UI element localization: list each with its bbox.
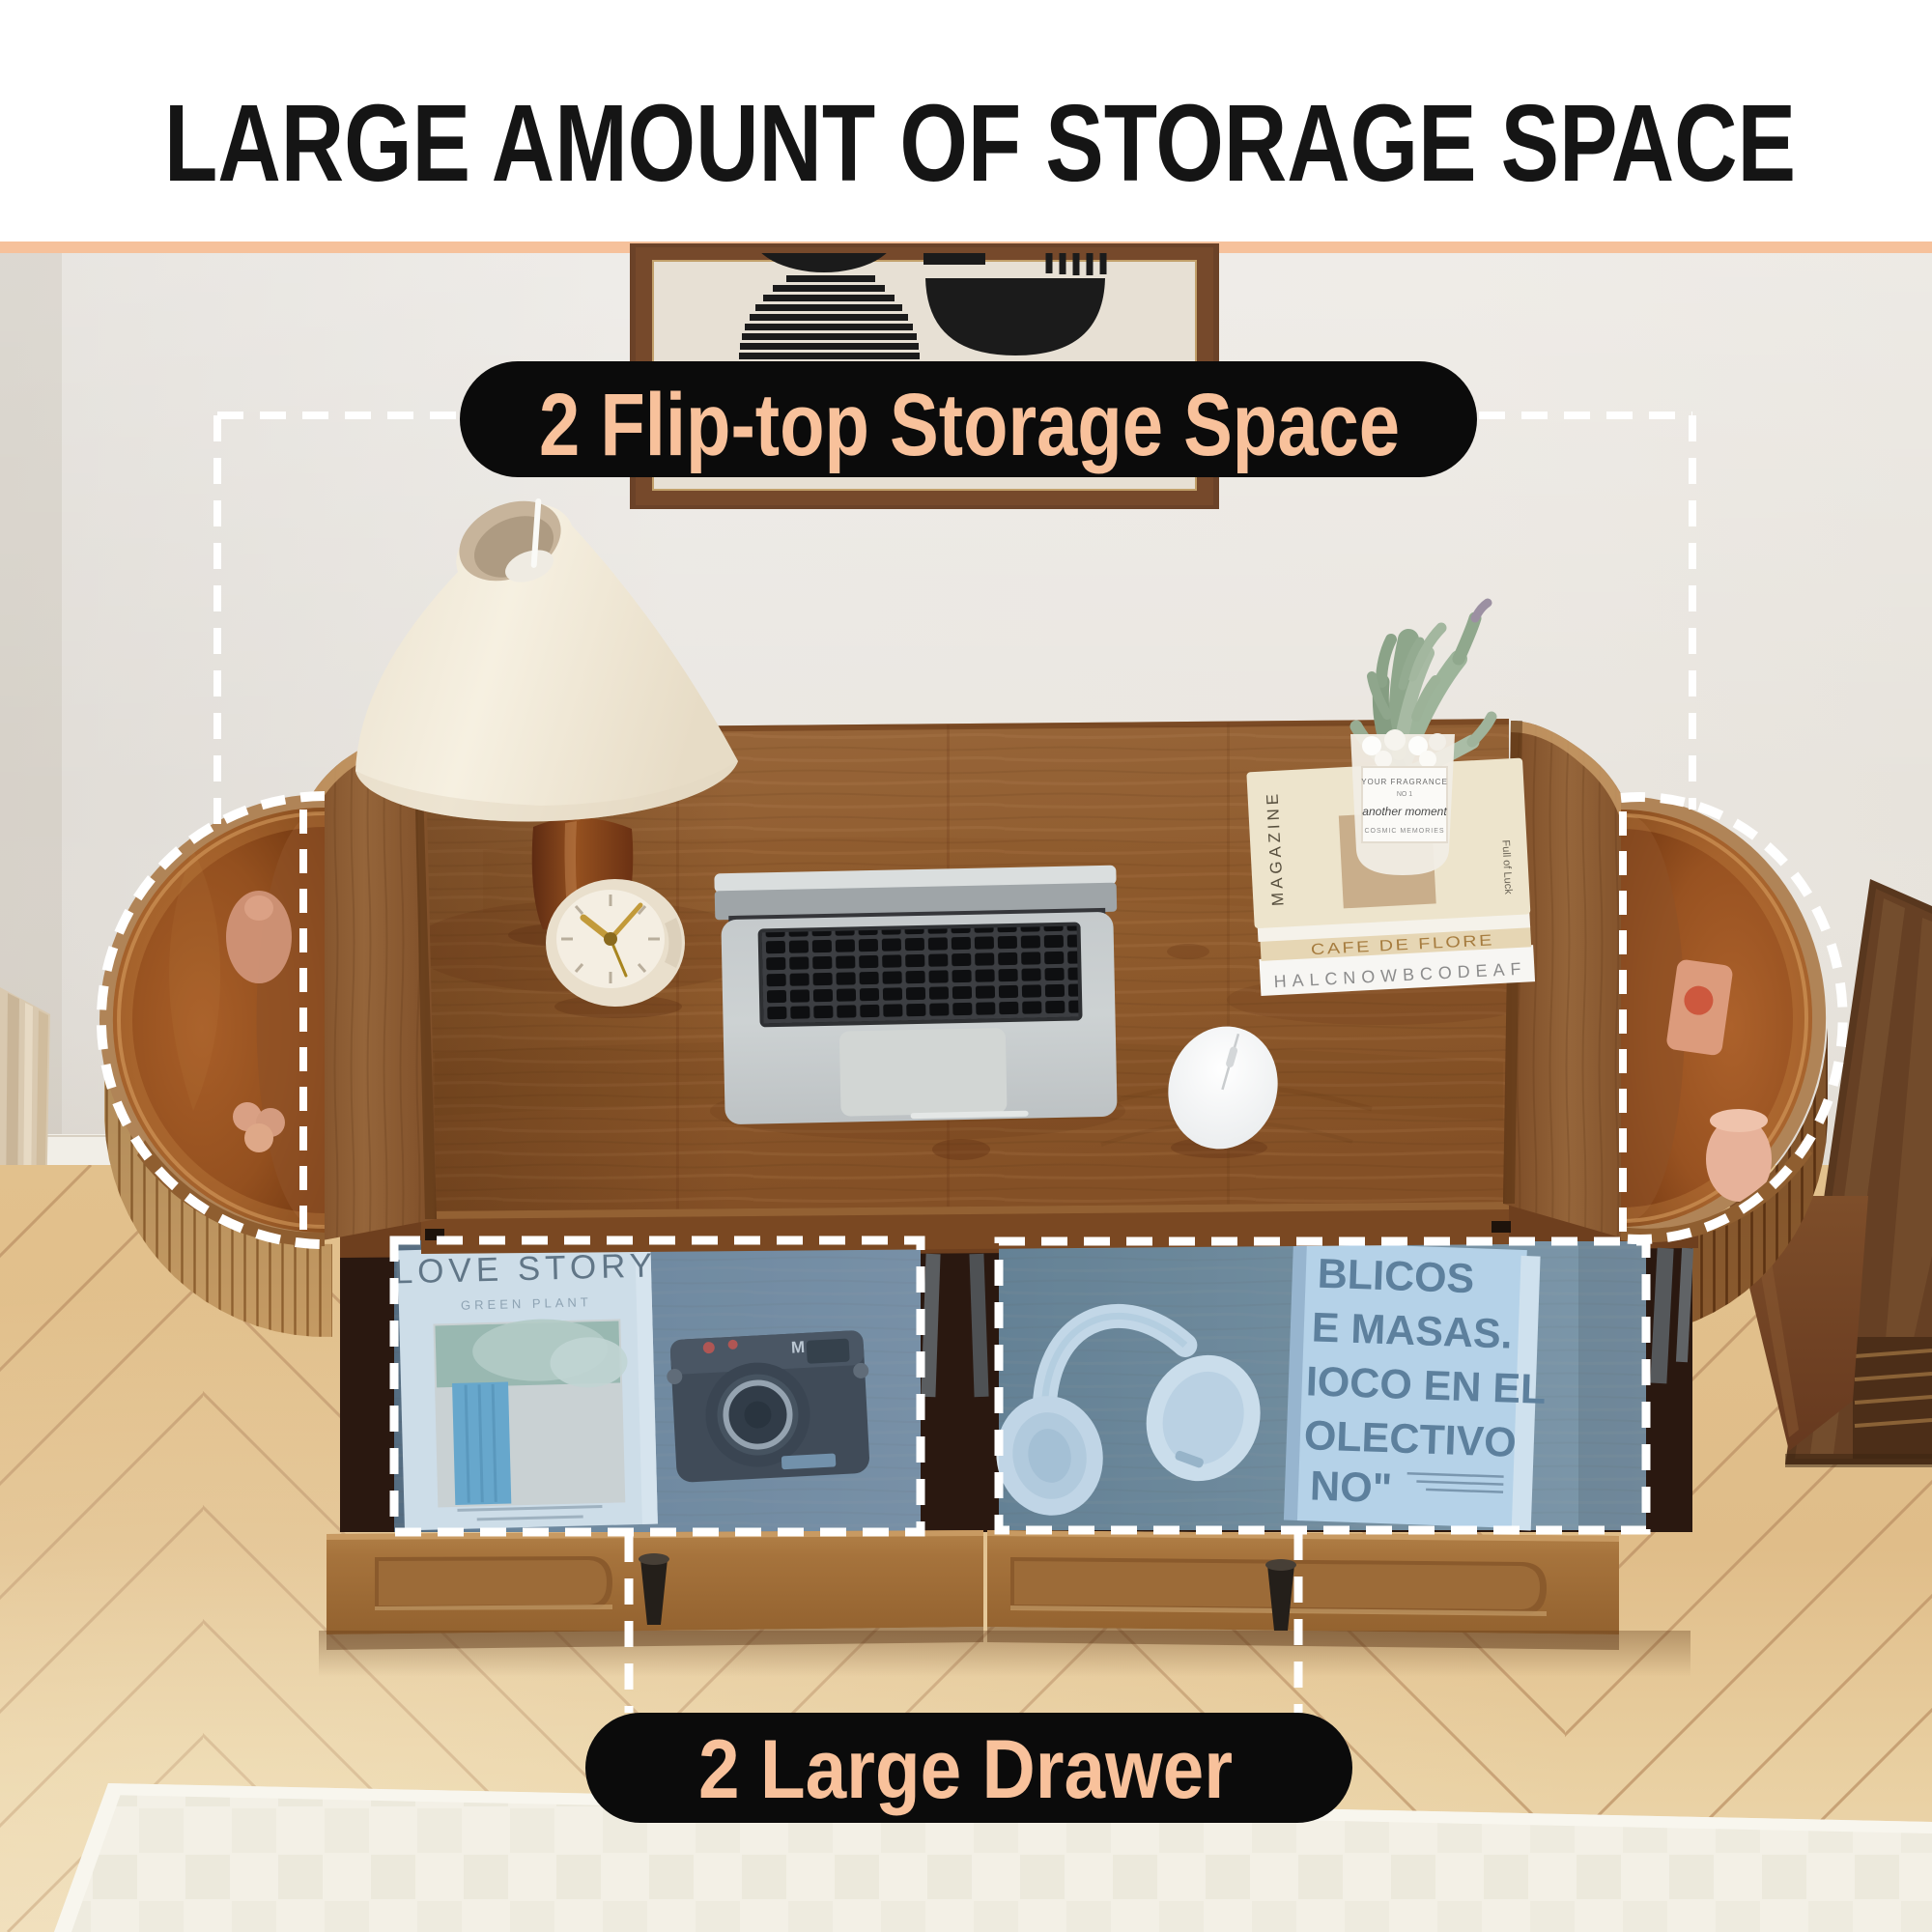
svg-text:another moment: another moment: [1362, 805, 1447, 818]
svg-text:YOUR FRAGRANCE: YOUR FRAGRANCE: [1361, 778, 1448, 786]
svg-text:2 Large Drawer: 2 Large Drawer: [698, 1723, 1233, 1816]
svg-text:2 Flip-top Storage Space: 2 Flip-top Storage Space: [539, 376, 1400, 474]
svg-text:LARGE AMOUNT OF STORAGE SPACE: LARGE AMOUNT OF STORAGE SPACE: [164, 82, 1796, 204]
svg-text:NO 1: NO 1: [1397, 791, 1412, 798]
svg-text:COSMIC MEMORIES: COSMIC MEMORIES: [1364, 828, 1444, 835]
